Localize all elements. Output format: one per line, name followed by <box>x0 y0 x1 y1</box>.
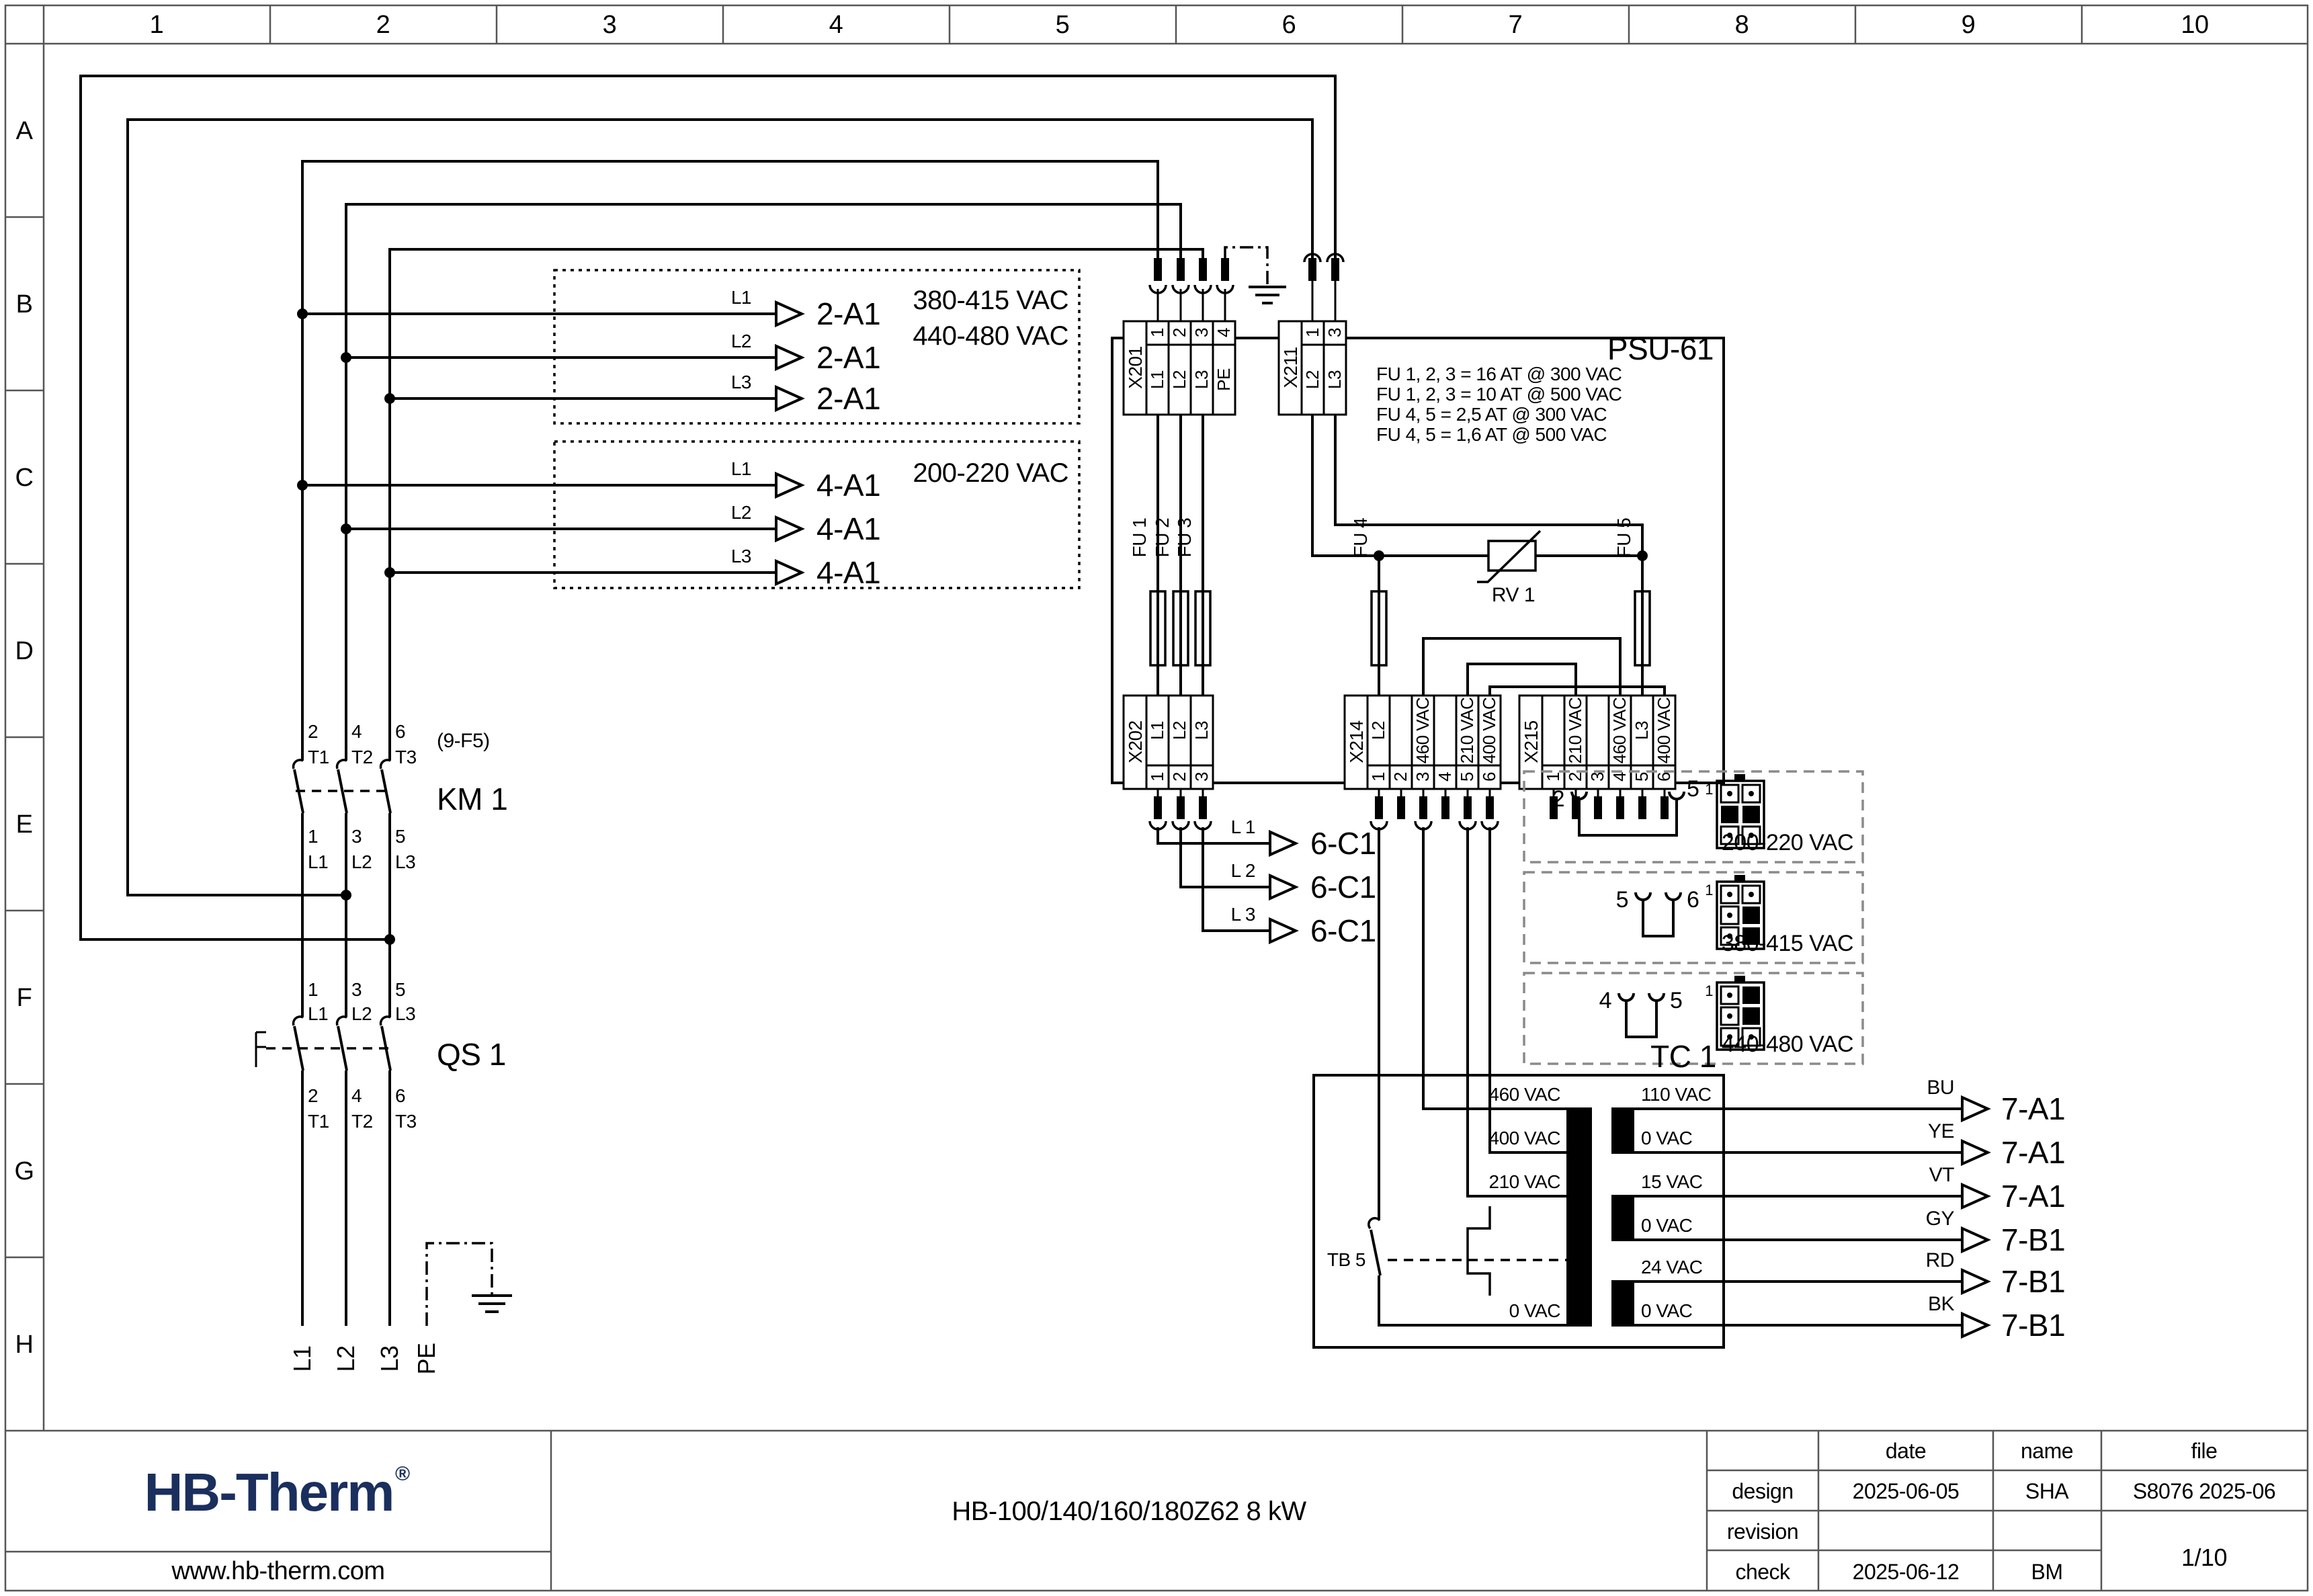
km1-pin: L2 <box>351 851 372 872</box>
pin-num: 1 <box>1543 772 1563 782</box>
check-date: 2025-06-12 <box>1853 1560 1960 1584</box>
pin-label: L2 <box>1169 370 1189 389</box>
varistor-label: RV 1 <box>1492 584 1535 606</box>
wire-target: 7-A1 <box>2001 1091 2065 1126</box>
qs1-pin: 5 <box>395 979 405 1000</box>
wire-color: RD <box>1926 1249 1954 1271</box>
secondary-tap: 110 VAC <box>1641 1084 1712 1105</box>
col-8: 8 <box>1735 11 1749 39</box>
pin-label: 460 VAC <box>1609 698 1630 764</box>
qs1-pin: 1 <box>308 979 318 1000</box>
schematic-sheet: 1 2 3 4 5 6 7 8 9 10 A B C D E F G H 380… <box>0 0 2313 1596</box>
km1-pin: T2 <box>351 747 373 767</box>
secondary-winding-15 <box>1611 1195 1634 1241</box>
fuse-label-fu5: FU 5 <box>1613 518 1634 558</box>
registered-mark: ® <box>395 1463 410 1485</box>
qs1-pin: T2 <box>351 1111 373 1132</box>
secondary-winding-24 <box>1611 1280 1634 1327</box>
fuse-label-fu1: FU 1 <box>1129 518 1150 558</box>
th-date: date <box>1886 1439 1926 1463</box>
qs1-pin: 6 <box>395 1085 405 1106</box>
row-E: E <box>16 810 33 839</box>
km1-cross-ref: (9-F5) <box>437 730 490 752</box>
col-4: 4 <box>829 11 843 39</box>
terminal-name: X214 <box>1346 720 1367 763</box>
feed-voltage-440-480: 440-480 VAC <box>913 321 1068 351</box>
terminal-x214: X214 L2 460 VAC 210 VAC 400 VAC 1 2 3 4 … <box>1345 696 1501 789</box>
wire-target: 6-C1 <box>1310 913 1376 948</box>
pin-label: L1 <box>1147 721 1167 740</box>
wire-target: 2-A1 <box>816 340 880 375</box>
wire-color: VT <box>1929 1164 1955 1186</box>
company-website: www.hb-therm.com <box>171 1557 384 1585</box>
km1-pin: 6 <box>395 721 405 742</box>
design-name: SHA <box>2025 1479 2069 1503</box>
pin-label: 210 VAC <box>1565 698 1585 764</box>
pin-label: L2 <box>1368 721 1388 740</box>
secondary-tap: 0 VAC <box>1641 1300 1693 1321</box>
row-check: check <box>1735 1560 1791 1584</box>
primary-tap: 400 VAC <box>1489 1128 1561 1148</box>
qs1-pin: T3 <box>395 1111 417 1132</box>
pin-num: 4 <box>1435 772 1455 782</box>
terminal-name: X202 <box>1125 720 1146 763</box>
jumper-pin: 5 <box>1687 776 1699 802</box>
col-2: 2 <box>376 11 390 39</box>
file-number: S8076 2025-06 <box>2133 1479 2275 1503</box>
pin-label: L3 <box>1632 721 1652 740</box>
fuse-note-1: FU 1, 2, 3 = 16 AT @ 300 VAC <box>1376 364 1622 384</box>
wire-color: GY <box>1926 1208 1955 1230</box>
row-revision: revision <box>1727 1519 1798 1544</box>
supply-pe: PE <box>413 1343 440 1374</box>
terminal-name: X211 <box>1280 347 1301 388</box>
company-logo: HB-Therm <box>144 1462 394 1522</box>
pin-num: 1 <box>1368 772 1388 782</box>
pin-num: 2 <box>1390 772 1411 782</box>
wire-color: BU <box>1927 1077 1954 1099</box>
phase-label: L 1 <box>1231 816 1255 837</box>
pin-num: 5 <box>1457 772 1477 782</box>
wire-target: 2-A1 <box>816 296 880 331</box>
supply-l2: L2 <box>332 1345 360 1372</box>
jumper-pin: 4 <box>1599 988 1611 1013</box>
connector-pin1: 1 <box>1705 982 1713 999</box>
phase-label: L2 <box>731 502 751 523</box>
wire-target: 6-C1 <box>1310 826 1376 861</box>
pin-num: 1 <box>1302 328 1322 337</box>
km1-pin: L1 <box>308 851 328 872</box>
wire-target: 7-B1 <box>2001 1308 2065 1343</box>
secondary-tap: 15 VAC <box>1641 1171 1703 1192</box>
jumper-pin: 5 <box>1616 887 1628 913</box>
tc1-ref: TC 1 <box>1650 1039 1716 1074</box>
jumper-pin: 2 <box>1552 786 1564 812</box>
tb5-label: TB 5 <box>1327 1249 1365 1270</box>
terminal-name: X215 <box>1521 720 1542 763</box>
pin-num: 1 <box>1147 328 1167 337</box>
wire-target: 4-A1 <box>816 555 880 590</box>
psu-name: PSU-61 <box>1607 331 1714 366</box>
product-title: HB-100/140/160/180Z62 8 kW <box>952 1497 1306 1526</box>
check-name: BM <box>2031 1560 2063 1584</box>
design-date: 2025-06-05 <box>1853 1479 1960 1503</box>
supply-l3: L3 <box>376 1345 403 1372</box>
km1-pin: L3 <box>395 851 415 872</box>
terminal-x215: X215 210 VAC 460 VAC L3 400 VAC 1 2 3 4 … <box>1519 696 1675 789</box>
qs1-ref: QS 1 <box>437 1037 506 1072</box>
terminal-x201: X201 1 2 3 4 L1 L2 L3 PE <box>1124 321 1235 415</box>
secondary-tap: 24 VAC <box>1641 1257 1703 1277</box>
pin-label: L3 <box>1191 721 1212 740</box>
pin-num: 3 <box>1413 772 1433 782</box>
pin-label: L3 <box>1324 370 1345 389</box>
pin-num: 6 <box>1479 772 1499 782</box>
wire-target: 7-B1 <box>2001 1264 2065 1299</box>
qs1-pin: L1 <box>308 1003 328 1024</box>
jumper-pin: 6 <box>1687 887 1699 913</box>
phase-label: L 2 <box>1231 860 1255 881</box>
terminal-name: X201 <box>1125 346 1146 388</box>
pin-num: 3 <box>1191 328 1212 337</box>
qs1-pin: L3 <box>395 1003 415 1024</box>
wire-target: 4-A1 <box>816 511 880 546</box>
secondary-tap: 0 VAC <box>1641 1128 1693 1148</box>
wire-target: 7-A1 <box>2001 1179 2065 1214</box>
pin-label: L2 <box>1302 370 1322 389</box>
col-3: 3 <box>603 11 617 39</box>
km1-ref: KM 1 <box>437 782 507 816</box>
pin-num: 3 <box>1324 328 1345 337</box>
wire-color: BK <box>1928 1293 1955 1315</box>
secondary-winding-110 <box>1611 1107 1634 1154</box>
pin-num: 1 <box>1147 772 1167 782</box>
terminal-x202: X202 L1 L2 L3 1 2 3 <box>1124 696 1213 789</box>
wire-target: 2-A1 <box>816 381 880 416</box>
connector-pin1: 1 <box>1705 781 1713 798</box>
phase-label: L3 <box>731 546 751 566</box>
qs1-pin: T1 <box>308 1111 329 1132</box>
fuse-label-fu2: FU 2 <box>1152 518 1173 558</box>
phase-label: L3 <box>731 372 751 392</box>
pin-num: 3 <box>1191 772 1212 782</box>
wire-target: 6-C1 <box>1310 870 1376 905</box>
row-F: F <box>17 984 32 1012</box>
primary-tap: 0 VAC <box>1509 1300 1561 1321</box>
row-A: A <box>16 117 34 145</box>
th-file: file <box>2191 1439 2218 1463</box>
fuse-note-2: FU 1, 2, 3 = 10 AT @ 500 VAC <box>1376 384 1622 405</box>
terminal-x211: X211 1 3 L2 L3 <box>1279 321 1346 415</box>
phase-label: L1 <box>731 458 751 479</box>
wire-target: 7-B1 <box>2001 1222 2065 1257</box>
km1-pin: 2 <box>308 721 318 742</box>
pin-label: 400 VAC <box>1479 698 1499 764</box>
feed-voltage-380-415: 380-415 VAC <box>913 286 1068 315</box>
qs1-pin: L2 <box>351 1003 372 1024</box>
col-10: 10 <box>2181 11 2208 39</box>
pin-label: L2 <box>1169 721 1189 740</box>
col-1: 1 <box>150 11 164 39</box>
fuse-note-3: FU 4, 5 = 2,5 AT @ 300 VAC <box>1376 404 1607 425</box>
connector-pin1: 1 <box>1705 882 1713 898</box>
option-voltage: 200-220 VAC <box>1722 830 1853 855</box>
wire-color: YE <box>1928 1120 1954 1142</box>
wire-target: 4-A1 <box>816 468 880 503</box>
pin-num: 3 <box>1587 772 1607 782</box>
pin-num: 4 <box>1609 772 1630 782</box>
pin-label: L1 <box>1147 370 1167 389</box>
th-name: name <box>2021 1439 2073 1463</box>
primary-tap: 460 VAC <box>1489 1084 1561 1105</box>
row-design: design <box>1732 1479 1793 1503</box>
wire-target: 7-A1 <box>2001 1135 2065 1170</box>
km1-pin: T3 <box>395 747 417 767</box>
fuse-label-fu3: FU 3 <box>1174 518 1195 558</box>
primary-winding <box>1566 1107 1592 1327</box>
pin-label: L3 <box>1191 370 1212 389</box>
row-D: D <box>15 637 34 665</box>
feed-voltage-200-220: 200-220 VAC <box>913 458 1068 488</box>
km1-pin: 1 <box>308 826 318 847</box>
pin-num: 4 <box>1214 328 1234 337</box>
phase-label: L1 <box>731 287 751 308</box>
option-voltage: 380-415 VAC <box>1722 931 1853 956</box>
pin-label: 210 VAC <box>1457 698 1477 764</box>
phase-label: L 3 <box>1231 904 1255 925</box>
fuse-note-4: FU 4, 5 = 1,6 AT @ 500 VAC <box>1376 424 1607 445</box>
km1-pin: 5 <box>395 826 405 847</box>
pin-label: 460 VAC <box>1413 698 1433 764</box>
col-5: 5 <box>1056 11 1070 39</box>
option-voltage: 440-480 VAC <box>1722 1032 1853 1057</box>
jumper-pin: 5 <box>1670 988 1682 1013</box>
pin-label: 400 VAC <box>1654 698 1674 764</box>
primary-tap: 210 VAC <box>1489 1171 1561 1192</box>
phase-label: L2 <box>731 331 751 351</box>
page-number: 1/10 <box>2181 1544 2227 1571</box>
pin-label: PE <box>1214 368 1234 391</box>
km1-pin: 4 <box>351 721 362 742</box>
col-9: 9 <box>1962 11 1976 39</box>
pin-num: 6 <box>1654 772 1674 782</box>
row-C: C <box>15 464 34 492</box>
pin-num: 2 <box>1169 328 1189 337</box>
supply-l1: L1 <box>288 1345 316 1372</box>
col-7: 7 <box>1509 11 1523 39</box>
row-B: B <box>16 290 33 319</box>
qs1-pin: 4 <box>351 1085 362 1106</box>
pin-num: 2 <box>1565 772 1585 782</box>
pin-num: 5 <box>1632 772 1652 782</box>
col-6: 6 <box>1282 11 1296 39</box>
secondary-tap: 0 VAC <box>1641 1215 1693 1236</box>
pin-num: 2 <box>1169 772 1189 782</box>
qs1-pin: 3 <box>351 979 362 1000</box>
qs1-pin: 2 <box>308 1085 318 1106</box>
fuse-label-fu4: FU 4 <box>1350 518 1371 558</box>
km1-pin: 3 <box>351 826 362 847</box>
row-G: G <box>14 1157 34 1185</box>
km1-pin: T1 <box>308 747 329 767</box>
row-H: H <box>15 1331 34 1359</box>
